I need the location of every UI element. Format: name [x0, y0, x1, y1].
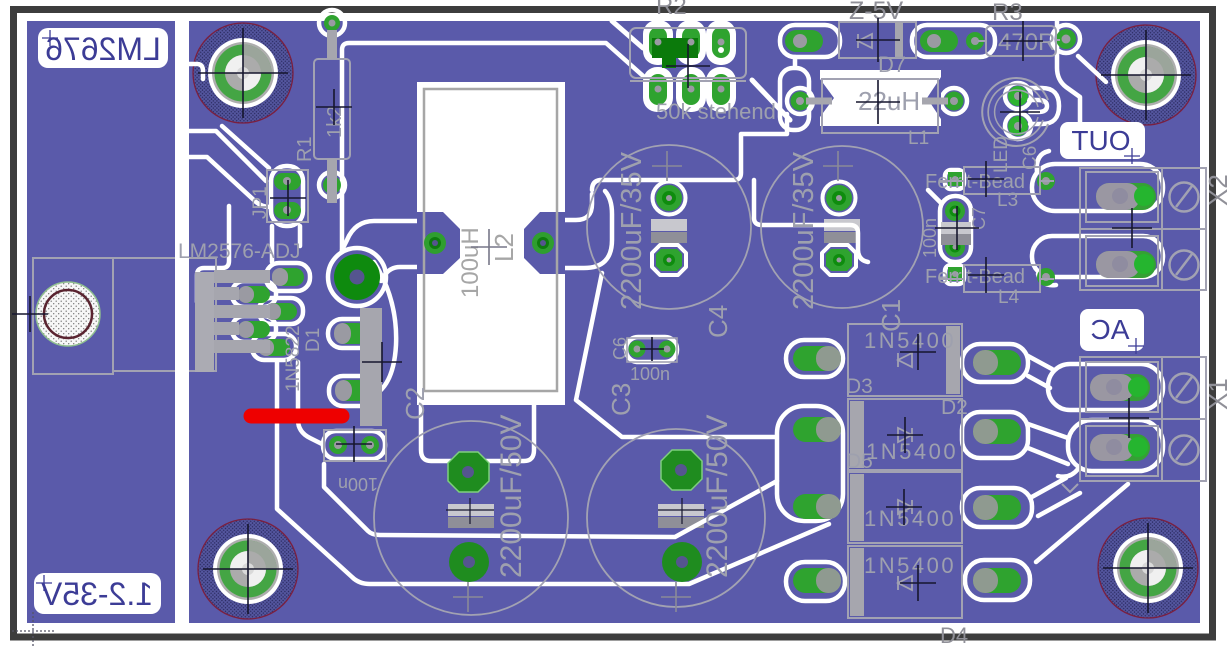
- svg-text:D2: D2: [941, 396, 968, 419]
- svg-text:2200uF/50V: 2200uF/50V: [701, 415, 734, 578]
- svg-text:LM2576-ADJ: LM2576-ADJ: [178, 240, 301, 263]
- svg-text:X1: X1: [1203, 378, 1227, 410]
- svg-text:C2: C2: [400, 387, 430, 420]
- svg-text:D1: D1: [303, 328, 324, 352]
- svg-text:LED: LED: [991, 136, 1012, 173]
- svg-text:LM2676: LM2676: [45, 31, 161, 67]
- svg-text:22uH: 22uH: [858, 86, 920, 116]
- svg-text:1.2-35V: 1.2-35V: [40, 576, 153, 612]
- svg-text:C3: C3: [606, 383, 636, 416]
- svg-text:D4: D4: [940, 623, 968, 648]
- svg-text:C7: C7: [969, 207, 989, 230]
- svg-text:D3: D3: [846, 375, 873, 398]
- svg-text:Z-5V: Z-5V: [849, 0, 904, 25]
- svg-text:R2: R2: [656, 0, 687, 20]
- svg-text:C1: C1: [876, 299, 906, 332]
- svg-text:C6: C6: [610, 337, 630, 360]
- svg-text:OUT: OUT: [1071, 125, 1130, 156]
- svg-text:AC: AC: [1091, 314, 1130, 345]
- svg-text:D5: D5: [846, 450, 873, 473]
- svg-text:1N5400: 1N5400: [864, 506, 956, 531]
- svg-text:C6: C6: [1020, 146, 1041, 170]
- svg-text:100n: 100n: [338, 474, 378, 494]
- svg-text:470R: 470R: [998, 29, 1055, 56]
- svg-text:50k stehend: 50k stehend: [656, 99, 776, 124]
- svg-text:C4: C4: [703, 305, 733, 338]
- svg-text:D7: D7: [878, 52, 906, 77]
- svg-text:2200uF/50V: 2200uF/50V: [495, 415, 528, 578]
- svg-text:L3: L3: [997, 190, 1018, 211]
- svg-text:X2: X2: [1203, 174, 1227, 206]
- svg-text:L4: L4: [998, 287, 1020, 308]
- svg-text:1N5400: 1N5400: [864, 553, 956, 578]
- svg-text:2200uF/35V: 2200uF/35V: [788, 151, 820, 310]
- svg-text:100n: 100n: [630, 364, 670, 384]
- svg-text:JP1: JP1: [250, 186, 271, 219]
- svg-text:L1: L1: [908, 128, 929, 149]
- svg-text:Ferrit-Bead: Ferrit-Bead: [925, 266, 1025, 288]
- svg-text:100n: 100n: [920, 218, 940, 258]
- svg-text:100uH: 100uH: [457, 227, 484, 298]
- svg-text:1k2: 1k2: [324, 106, 346, 138]
- svg-text:1N5400: 1N5400: [866, 439, 958, 464]
- svg-text:1N5822: 1N5822: [283, 325, 304, 392]
- svg-text:2200uF/35V: 2200uF/35V: [616, 151, 648, 310]
- svg-text:R1: R1: [294, 136, 316, 162]
- svg-text:R3: R3: [992, 0, 1023, 26]
